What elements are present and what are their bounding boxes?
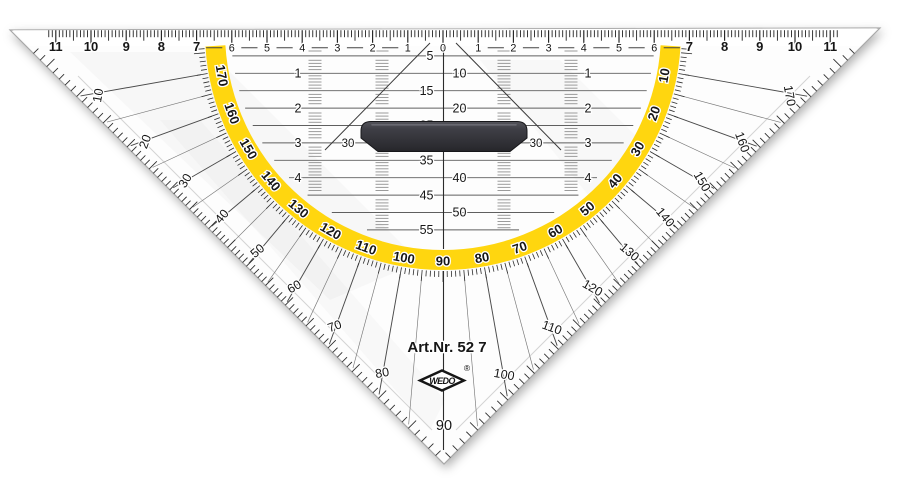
center-mm-number: 5 [427, 49, 434, 63]
ruler-cm-number: 7 [193, 39, 200, 54]
handle-left-30-label: 30 [342, 138, 355, 150]
left-cm-row-number: 4 [295, 171, 302, 185]
set-square-photo: 1020304050607080901001101201301401501601… [0, 0, 900, 490]
left-cm-row-number: 2 [295, 101, 302, 115]
left-cm-row-number: 1 [295, 67, 302, 81]
right-cm-row-number: 3 [585, 136, 592, 150]
center-mm-number: 15 [420, 84, 434, 98]
grip-handle[interactable] [361, 122, 527, 152]
ruler-cm-number: 2 [370, 43, 376, 55]
ruler-cm-number: 4 [581, 43, 587, 55]
outer-degree-label: 80 [374, 365, 390, 381]
ruler-cm-number: 8 [721, 39, 728, 54]
ruler-cm-number: 10 [84, 39, 98, 54]
ruler-cm-number: 6 [229, 43, 235, 55]
outer-degree-label: 10 [90, 87, 106, 103]
center-mm-number: 50 [453, 206, 467, 220]
center-mm-number: 55 [420, 223, 434, 237]
band-degree-label: 80 [474, 249, 491, 266]
handle-right-30-label: 30 [530, 138, 543, 150]
center-mm-number: 35 [420, 154, 434, 168]
ruler-cm-number: 10 [788, 39, 802, 54]
center-mm-number: 45 [420, 188, 434, 202]
grip-handle-body[interactable] [361, 122, 527, 152]
vertex-90-label: 90 [436, 418, 452, 434]
ruler-cm-number: 4 [299, 43, 305, 55]
ruler-cm-number: 7 [686, 39, 693, 54]
wedo-logo-text: WEDO [429, 376, 455, 386]
ruler-cm-number: 6 [651, 43, 657, 55]
band-degree-label: 10 [655, 67, 672, 84]
right-cm-row-number: 4 [585, 171, 592, 185]
ruler-cm-number: 2 [510, 43, 516, 55]
left-cm-row-number: 3 [295, 136, 302, 150]
center-mm-number: 40 [453, 171, 467, 185]
ruler-cm-number: 8 [158, 39, 165, 54]
ruler-cm-number: 5 [264, 43, 270, 55]
ruler-cm-number: 0 [440, 43, 446, 55]
registered-mark: ® [464, 363, 471, 373]
ruler-cm-number: 3 [334, 43, 340, 55]
ruler-cm-number: 5 [616, 43, 622, 55]
ruler-cm-number: 9 [123, 39, 130, 54]
ruler-cm-number: 1 [475, 43, 481, 55]
center-mm-number: 20 [453, 101, 467, 115]
right-cm-row-number: 1 [585, 67, 592, 81]
art-number: Art.Nr. 52 7 [407, 339, 486, 356]
right-cm-row-number: 2 [585, 101, 592, 115]
ruler-cm-number: 11 [49, 39, 63, 54]
ruler-cm-number: 1 [405, 43, 411, 55]
center-mm-number: 10 [453, 67, 467, 81]
ruler-cm-number: 3 [546, 43, 552, 55]
ruler-cm-number: 11 [823, 39, 837, 54]
band-degree-label: 90 [436, 254, 450, 269]
geometry-triangle-figure: 1020304050607080901001101201301401501601… [0, 0, 900, 490]
ruler-cm-number: 9 [756, 39, 763, 54]
